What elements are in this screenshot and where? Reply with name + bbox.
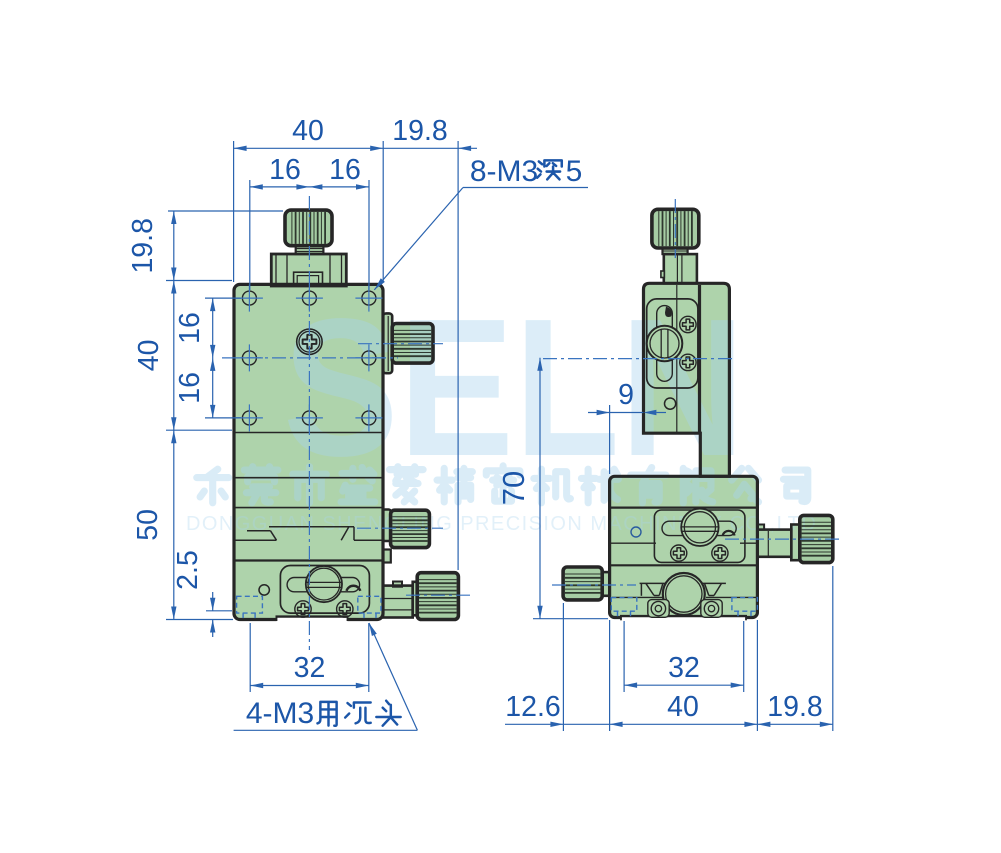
svg-text:32: 32 [294, 652, 326, 684]
svg-text:16: 16 [174, 312, 206, 344]
svg-text:DONGGUAN SHENGLING PRECISION M: DONGGUAN SHENGLING PRECISION MACHINERY C… [186, 513, 817, 535]
svg-text:32: 32 [668, 652, 700, 684]
svg-text:16: 16 [174, 372, 206, 404]
svg-text:40: 40 [133, 340, 165, 372]
svg-text:12.6: 12.6 [505, 691, 560, 723]
svg-text:19.8: 19.8 [392, 115, 447, 147]
svg-text:19.8: 19.8 [127, 218, 159, 273]
svg-text:40: 40 [292, 115, 324, 147]
svg-text:4-M3: 4-M3 [246, 697, 314, 730]
svg-text:8-M3: 8-M3 [470, 155, 538, 188]
svg-text:5: 5 [566, 155, 583, 188]
svg-text:19.8: 19.8 [767, 691, 822, 723]
svg-text:40: 40 [667, 691, 699, 723]
svg-text:9: 9 [618, 379, 634, 411]
svg-text:16: 16 [329, 154, 361, 186]
svg-text:2.5: 2.5 [172, 550, 204, 590]
svg-text:50: 50 [132, 509, 164, 541]
svg-text:16: 16 [269, 154, 301, 186]
svg-text:70: 70 [496, 471, 531, 505]
